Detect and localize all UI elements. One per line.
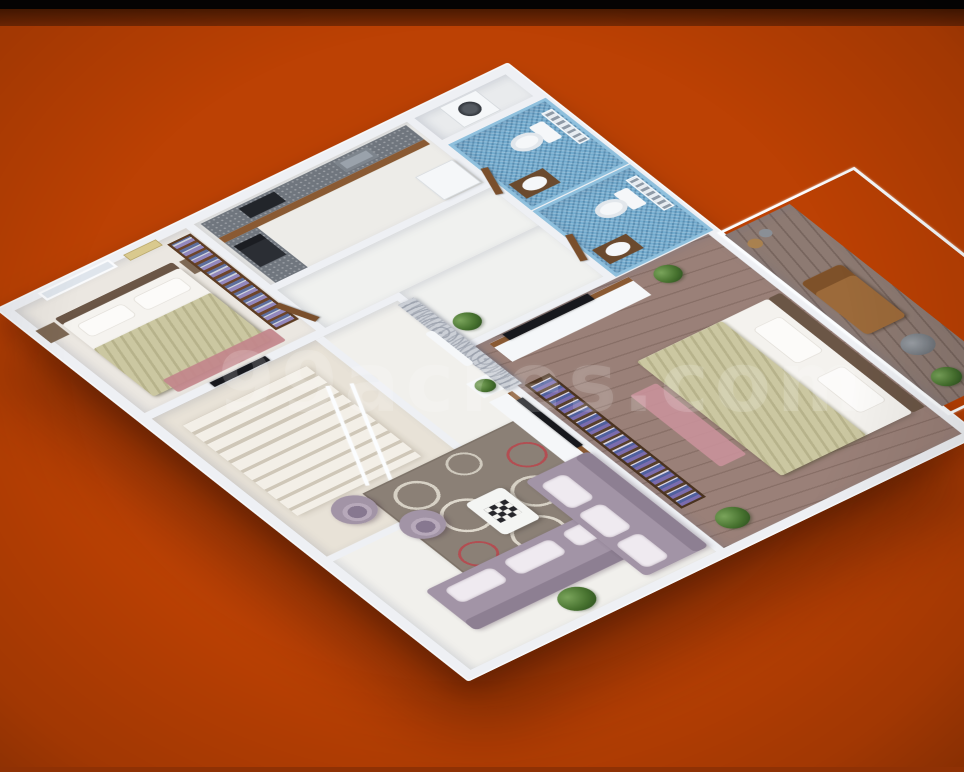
top-black-bar [0,0,964,9]
floor-plan [0,62,964,681]
top-dark-band [0,9,964,26]
washing-machine-door [453,99,486,119]
render-canvas: 99acres.com [0,0,964,772]
bottom-dark-strip [0,767,964,772]
chessboard [484,499,523,523]
